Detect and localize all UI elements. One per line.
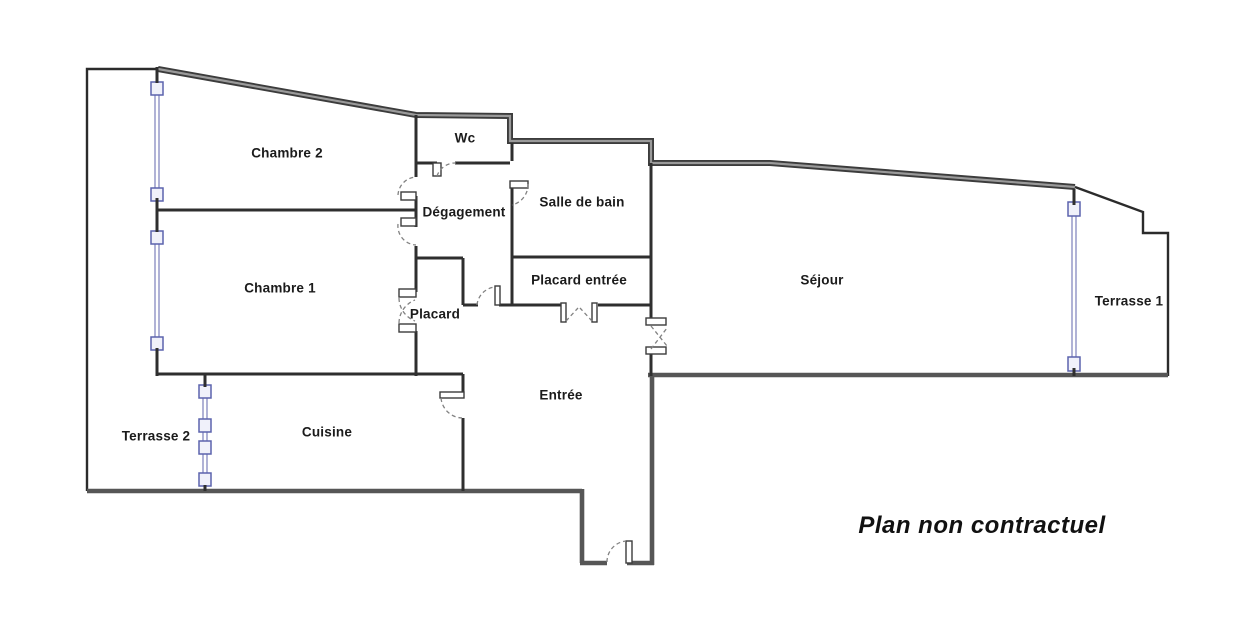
room-label-sejour: Séjour [800,273,843,288]
room-label-wc: Wc [455,131,476,146]
window-block [151,231,163,244]
door-jamb [399,324,416,332]
door-jamb [433,163,441,176]
door-jamb [401,218,416,226]
door-jamb [440,392,464,398]
window-block [199,473,211,486]
terrace1-wall [1075,187,1168,376]
door-jamb [561,303,566,322]
door-jamb [592,303,597,322]
floor-plan: Chambre 2 Wc Dégagement Salle de bain Ch… [0,0,1240,626]
window-block [199,419,211,432]
room-label-cuisine: Cuisine [302,425,352,440]
door-swings [398,163,667,562]
exterior-walls [87,69,1168,565]
room-label-salle-de-bain: Salle de bain [539,195,624,210]
outer-wall-thick [158,69,1075,187]
door-jambs [399,163,666,563]
plan-disclaimer: Plan non contractuel [858,512,1105,540]
door-jamb [495,286,500,305]
door-jamb [626,541,632,563]
room-label-chambre-1: Chambre 1 [244,281,316,296]
door-jamb [399,289,416,297]
door-jamb [510,181,528,188]
outer-wall-thick-core [158,69,1075,187]
door-jamb [646,318,666,325]
room-label-entree: Entrée [539,388,582,403]
room-label-placard-entree: Placard entrée [531,273,627,288]
room-label-chambre-2: Chambre 2 [251,146,323,161]
room-label-terrasse-2: Terrasse 2 [122,429,191,444]
room-label-placard: Placard [410,307,460,322]
room-label-terrasse-1: Terrasse 1 [1095,294,1164,309]
door-swing-arcs [398,163,667,562]
room-label-degagement: Dégagement [422,205,505,220]
door-jamb [401,192,416,200]
door-jamb [646,347,666,354]
window-block [151,82,163,95]
window-block [199,441,211,454]
